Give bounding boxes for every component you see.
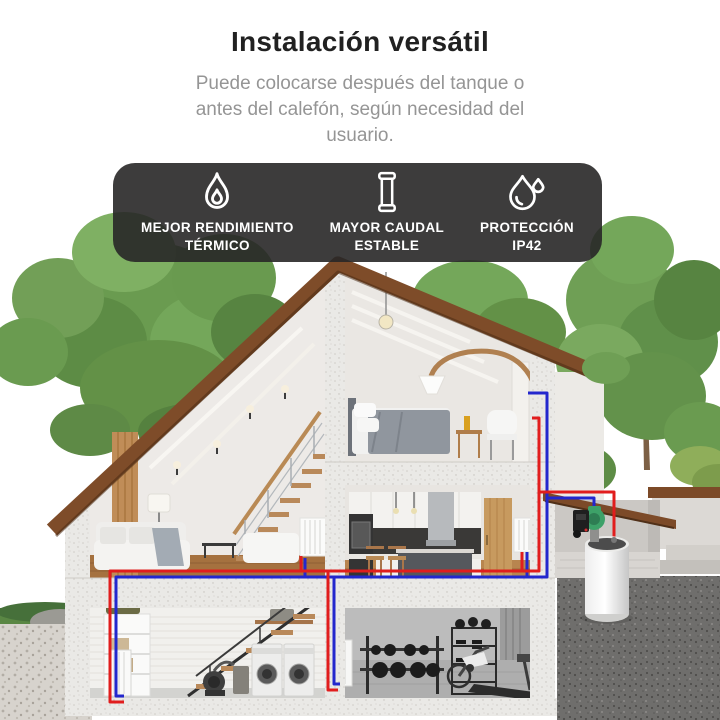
loveseat — [243, 533, 299, 563]
page-title: Instalación versátil — [0, 26, 720, 58]
feature-thermal-performance: MEJOR RENDIMIENTO TÉRMICO — [141, 171, 294, 254]
feature-label-line: PROTECCIÓN — [480, 220, 574, 235]
washer — [252, 644, 282, 696]
laundry-room — [90, 596, 330, 698]
gym — [334, 608, 535, 700]
feature-label-line: TÉRMICO — [185, 238, 250, 253]
feature-label: PROTECCIÓN IP42 — [480, 219, 574, 254]
feature-label-line: ESTABLE — [355, 238, 420, 253]
feature-label-line: MAYOR CAUDAL — [330, 220, 445, 235]
right-facade — [555, 372, 604, 500]
range-hood — [426, 492, 456, 546]
feature-label: MAYOR CAUDAL ESTABLE — [330, 219, 445, 254]
dryer — [284, 644, 314, 696]
header: Instalación versátil Puede colocarse des… — [0, 26, 720, 148]
page: Instalación versátil Puede colocarse des… — [0, 0, 720, 720]
kitchen — [345, 485, 536, 578]
water-drops-icon — [506, 171, 548, 213]
sofa — [94, 522, 190, 570]
feature-label-line: MEJOR RENDIMIENTO — [141, 220, 294, 235]
features-bar: MEJOR RENDIMIENTO TÉRMICO MAYOR CAUDAL E… — [113, 163, 602, 262]
feature-stable-flow: MAYOR CAUDAL ESTABLE — [330, 171, 445, 254]
feature-label-line: IP42 — [512, 238, 541, 253]
pipe-cartridge-icon — [372, 171, 402, 213]
rock-cross-section — [557, 576, 720, 720]
feature-label: MEJOR RENDIMIENTO TÉRMICO — [141, 219, 294, 254]
water-tank — [581, 536, 633, 624]
pendant-light — [379, 315, 393, 329]
kitchen-island — [396, 549, 474, 578]
flame-icon — [198, 171, 236, 213]
feature-ip42-protection: PROTECCIÓN IP42 — [480, 171, 574, 254]
laundry-basket — [233, 666, 249, 694]
pantry-door — [484, 498, 512, 578]
radiator-laundry — [109, 650, 131, 696]
foliage-over-roof — [582, 352, 630, 384]
radiator-living — [300, 518, 328, 556]
page-subtitle: Puede colocarse después del tanque o ant… — [174, 71, 546, 148]
